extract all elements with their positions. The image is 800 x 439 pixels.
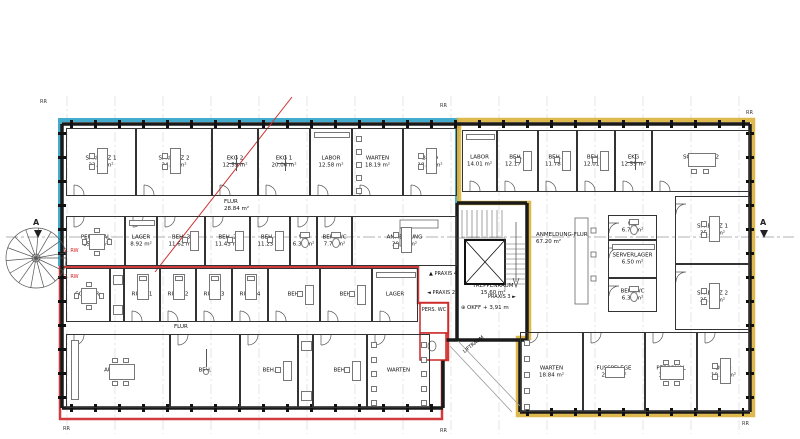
room-personal-l: PERSONAL15.71 m²: [66, 216, 125, 266]
furniture: [371, 371, 377, 377]
room-flur-l: FLUR28.84 m²: [66, 196, 457, 216]
grid-tick-top-1: RR: [40, 99, 47, 105]
furniture: [82, 239, 87, 245]
room-beh3-l: BEH. 311.62 m²: [157, 216, 205, 266]
room-name: FLUR: [224, 199, 249, 206]
furniture: [301, 238, 309, 248]
furniture: [401, 227, 412, 253]
furniture: [674, 381, 680, 386]
furniture: [129, 220, 155, 226]
room-beh-b3: BEH.: [313, 334, 367, 408]
furniture: [81, 288, 97, 304]
furniture: [635, 154, 636, 170]
room-ruhe3: RUHE 3: [196, 268, 232, 322]
room-buero-r: BÜRO19.35 m²: [697, 332, 750, 412]
room-sozialr: SOZIALR.: [66, 268, 110, 322]
furniture: [275, 231, 284, 251]
furniture: [688, 153, 716, 167]
room-lager-a: LAGER: [372, 268, 418, 322]
section-letter-left: A: [33, 218, 39, 227]
room-warten-l: WARTEN18.19 m²: [352, 128, 403, 196]
room-warten-b: WARTEN: [367, 334, 430, 408]
furniture: [301, 341, 312, 351]
room-buero-l: BÜRO18.06 m²: [403, 128, 457, 196]
furniture: [630, 225, 638, 235]
room-ekg1-l: EKG 120.06 m²: [258, 128, 310, 196]
furniture: [421, 386, 427, 392]
room-labor-l: LABOR12.58 m²: [310, 128, 352, 196]
furniture: [418, 153, 424, 159]
room-beh-b2: BEH.: [240, 334, 298, 408]
room-name: WARTEN: [368, 368, 429, 375]
furniture: [466, 134, 495, 140]
room-beh3-r: BEH. 312.01 m²: [577, 130, 615, 192]
room-flur-a: FLUR: [66, 322, 418, 334]
furniture: [418, 164, 424, 170]
room-name: EKG 1: [259, 155, 309, 162]
room-name: EKG 2: [213, 155, 257, 162]
furniture: [421, 371, 427, 377]
furniture: [182, 237, 188, 243]
room-behwc-r: BEH. WC6.36 m²: [608, 278, 657, 312]
furniture: [376, 272, 416, 278]
furniture: [524, 372, 530, 378]
elevator: [465, 240, 505, 284]
furniture: [630, 292, 638, 302]
furniture: [660, 366, 684, 380]
room-area: 12.58 m²: [311, 162, 351, 169]
room-ekg2-l: EKG 212.59 m²: [212, 128, 258, 196]
entrance-ramp: [450, 341, 520, 412]
furniture: [605, 367, 625, 378]
furniture: [86, 282, 92, 287]
furniture: [701, 232, 707, 238]
room-beh1-r: BEH.112.17 m²: [497, 130, 538, 192]
furniture: [371, 342, 377, 348]
room-area: 28.84 m²: [224, 206, 249, 213]
room-personal-r: PERSONAL17.80 m²: [645, 332, 697, 412]
furniture: [332, 238, 340, 248]
furniture: [356, 149, 362, 155]
furniture: [89, 153, 95, 159]
furniture: [74, 293, 79, 299]
furniture: [352, 361, 361, 381]
furniture: [663, 360, 669, 365]
grid-tick-bottom-1: RR: [63, 426, 70, 432]
arrow-right-icon: ►: [512, 294, 516, 300]
room-behwc-l: BEH. WC7.78 m²: [317, 216, 352, 266]
furniture: [701, 299, 707, 305]
furniture: [612, 244, 655, 250]
room-sprechz1-l: SPRECHZ 122.24 m²: [66, 128, 136, 196]
room-name: WARTEN: [353, 155, 402, 162]
room-name: LABOR: [311, 155, 351, 162]
room-area: 6.50 m²: [609, 259, 656, 266]
level-marker-icon: ⊕: [461, 305, 465, 311]
room-lager-l: LAGER8.92 m²: [125, 216, 157, 266]
furniture: [371, 400, 377, 406]
furniture: [426, 148, 437, 174]
furniture: [629, 219, 639, 225]
room-name: EKG: [616, 154, 651, 161]
room-ruhe2: RUHE 2: [160, 268, 196, 322]
furniture: [524, 356, 530, 362]
furniture: [712, 374, 718, 380]
furniture: [600, 151, 609, 171]
furniture: [94, 228, 100, 233]
furniture: [720, 358, 731, 384]
grid-tick-top-2: RR: [440, 103, 447, 109]
furniture: [305, 285, 314, 305]
furniture: [99, 293, 104, 299]
furniture: [112, 381, 118, 386]
furniture: [421, 400, 427, 406]
furniture: [211, 276, 219, 281]
furniture: [170, 148, 181, 174]
floor-plan: TREPPENRAUM15.60 m² ⊕ OKFF + 3,91 m ▲ PR…: [0, 0, 800, 439]
stair-direction-arrow: [513, 222, 519, 287]
furniture: [275, 367, 281, 373]
furniture: [421, 342, 427, 348]
furniture: [247, 276, 255, 281]
room-ruhe1: RUHE 1: [124, 268, 160, 322]
furniture: [301, 391, 312, 401]
room-schulung2: SCHULUNG 234.39 m²: [652, 130, 750, 192]
furniture: [107, 239, 112, 245]
room-beh2-r: BEH. 211.78 m²: [538, 130, 577, 192]
room-area: 8.92 m²: [126, 241, 156, 248]
furniture: [357, 285, 366, 305]
furniture: [703, 169, 709, 174]
furniture: [71, 340, 79, 400]
furniture: [227, 237, 233, 243]
furniture: [515, 157, 521, 163]
room-beh-b1: BEH.: [170, 334, 240, 408]
praxis2-label: ◄ PRAXIS 2: [427, 290, 455, 296]
furniture: [371, 386, 377, 392]
furniture: [206, 349, 207, 367]
room-anmeldung-l: ANMELDUNG30.92 m²: [352, 216, 457, 266]
room-wc-r: WC6.76 m²: [608, 215, 657, 240]
furniture: [356, 188, 362, 194]
furniture: [371, 357, 377, 363]
furniture: [562, 151, 571, 171]
furniture: [89, 234, 105, 250]
furniture: [123, 381, 129, 386]
furniture: [344, 367, 350, 373]
praxis3-label: PRAXIS 3 ►: [488, 294, 516, 300]
furniture: [356, 175, 362, 181]
room-ruhe4: RUHE 4: [232, 268, 268, 322]
room-name: LAGER: [373, 292, 417, 299]
room-wc-l: WC6.32 m²: [290, 216, 317, 266]
furniture: [283, 361, 292, 381]
furniture: [674, 360, 680, 365]
furniture: [190, 231, 199, 251]
furniture: [393, 243, 399, 249]
furniture: [139, 276, 147, 281]
furniture: [709, 283, 720, 309]
grid-tick-bottom-2: RR: [440, 428, 447, 434]
furniture: [97, 148, 108, 174]
furniture: [356, 162, 362, 168]
furniture: [235, 231, 244, 251]
furniture: [314, 132, 350, 138]
furniture: [113, 305, 123, 315]
furniture: [592, 157, 598, 163]
room-aufenth: AUFENTH.: [66, 334, 170, 408]
furniture: [86, 305, 92, 310]
room-name: LABOR: [463, 154, 496, 161]
room-ekg-r: EKG12.59 m²: [615, 130, 652, 192]
anmeldung-flur-label: ANMELDUNG-FLUR67.20 m²: [536, 232, 588, 246]
furniture: [554, 157, 560, 163]
furniture: [162, 164, 168, 170]
room-name: FLUR: [174, 324, 188, 331]
furniture: [393, 232, 399, 238]
pers-wc-label: PERS. WC: [421, 308, 447, 314]
arrow-up-icon: ▲: [429, 271, 433, 277]
grid-tick-top-3: RR: [746, 110, 753, 116]
room-labor-r: LABOR14.01 m²: [462, 130, 497, 192]
room-beh2-l: BEH. 211.43 m²: [205, 216, 250, 266]
grid-tick-bottom-3: RR: [742, 421, 749, 427]
furniture: [267, 237, 273, 243]
furniture: [349, 291, 355, 297]
furniture: [524, 388, 530, 394]
furniture: [162, 153, 168, 159]
furniture: [663, 381, 669, 386]
room-shaft-a: [110, 268, 124, 322]
room-server-r: SERVERLAGER6.50 m²: [608, 240, 657, 278]
furniture: [175, 276, 183, 281]
room-beh-a2: BEH.: [320, 268, 372, 322]
room-name: LAGER: [126, 234, 156, 241]
furniture: [524, 340, 530, 346]
furniture: [356, 136, 362, 142]
furniture: [712, 363, 718, 369]
furniture: [112, 358, 118, 363]
furniture: [297, 291, 303, 297]
furniture: [524, 404, 530, 410]
praxis4-label: ▲ PRAXIS 4: [429, 271, 457, 277]
okff-label: ⊕ OKFF + 3,91 m: [461, 305, 509, 312]
room-shaft-b: [298, 334, 313, 408]
room-name: WARTEN: [521, 365, 582, 372]
furniture: [236, 155, 237, 171]
room-area: 18.84 m²: [521, 372, 582, 379]
room-beh1-l: BEH. 111.23 m²: [250, 216, 290, 266]
furniture: [421, 357, 427, 363]
furniture: [203, 369, 209, 375]
furniture: [109, 364, 135, 380]
furniture: [285, 155, 286, 171]
room-sprechz2-l: SPRECHZ 224.87 m²: [136, 128, 212, 196]
furniture: [523, 151, 532, 171]
furniture: [113, 275, 123, 285]
room-sprechz2-r: SPRECHZ 225.90 m²: [675, 264, 750, 330]
section-letter-right: A: [760, 218, 766, 227]
room-area: 14.01 m²: [463, 161, 496, 168]
room-name: SERVERLAGER: [609, 252, 656, 259]
room-fusspflege: FUSSPFLEGE21.91 m²: [583, 332, 645, 412]
furniture: [701, 221, 707, 227]
furniture: [94, 251, 100, 256]
room-beh-a1: BEH.: [268, 268, 320, 322]
furniture: [89, 164, 95, 170]
room-warten-r: WARTEN18.84 m²: [520, 332, 583, 412]
furniture: [691, 169, 697, 174]
furniture: [701, 288, 707, 294]
furniture: [123, 358, 129, 363]
room-sprechz1-r: SPRECHZ 125.90 m²: [675, 196, 750, 264]
arrow-left-icon: ◄: [427, 290, 431, 296]
furniture: [709, 216, 720, 242]
